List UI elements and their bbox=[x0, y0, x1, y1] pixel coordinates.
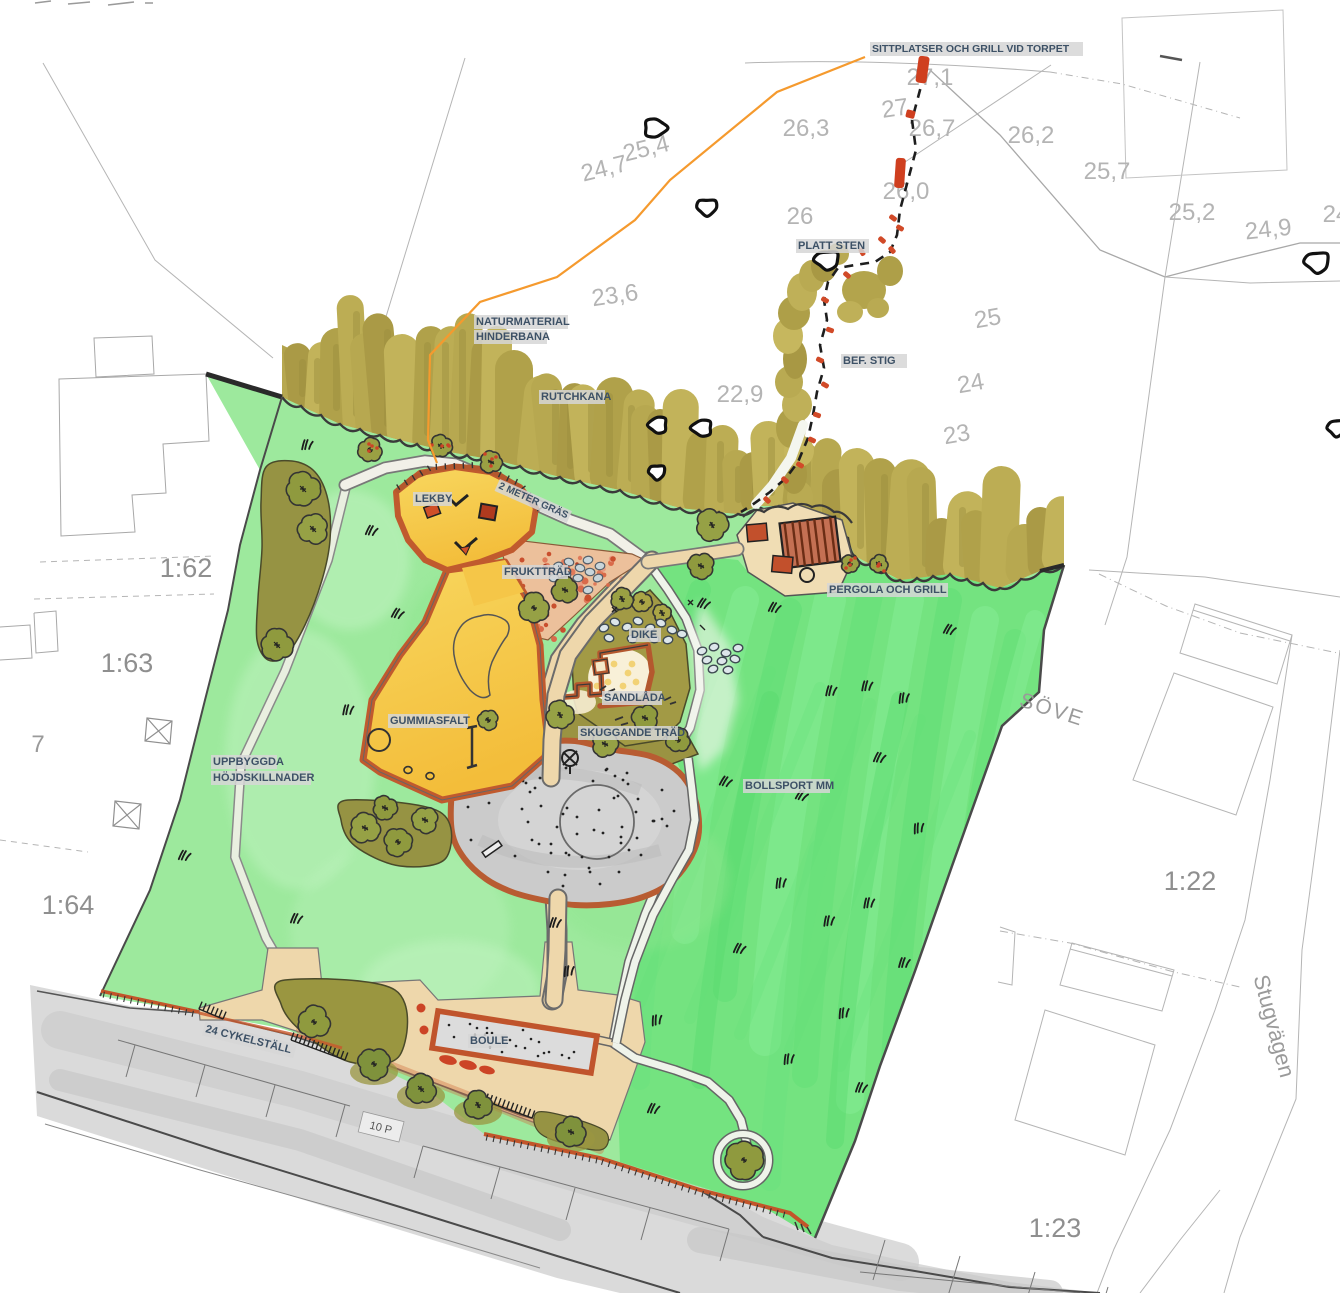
svg-text:1:62: 1:62 bbox=[160, 553, 213, 583]
svg-text:1:64: 1:64 bbox=[42, 890, 95, 920]
svg-text:26: 26 bbox=[787, 203, 814, 230]
svg-text:NATURMATERIAL: NATURMATERIAL bbox=[476, 316, 570, 328]
svg-text:BEF. STIG: BEF. STIG bbox=[843, 355, 896, 367]
svg-text:HINDERBANA: HINDERBANA bbox=[476, 331, 550, 343]
svg-text:1:63: 1:63 bbox=[101, 648, 154, 678]
svg-text:1:22: 1:22 bbox=[1164, 866, 1217, 896]
svg-text:25,7: 25,7 bbox=[1084, 158, 1131, 185]
svg-text:BOLLSPORT MM: BOLLSPORT MM bbox=[745, 780, 834, 792]
svg-text:7: 7 bbox=[31, 731, 44, 758]
svg-text:23: 23 bbox=[941, 419, 972, 450]
svg-text:LEKBY: LEKBY bbox=[415, 493, 453, 505]
svg-text:UPPBYGGDA: UPPBYGGDA bbox=[213, 756, 284, 768]
svg-text:1:23: 1:23 bbox=[1029, 1213, 1082, 1243]
svg-text:27,1: 27,1 bbox=[907, 64, 954, 91]
svg-text:22,9: 22,9 bbox=[717, 381, 764, 408]
svg-text:24: 24 bbox=[1323, 201, 1340, 228]
svg-text:SITTPLATSER OCH GRILL VID TORP: SITTPLATSER OCH GRILL VID TORPET bbox=[872, 43, 1070, 55]
svg-text:BOULE: BOULE bbox=[470, 1035, 509, 1047]
svg-text:24: 24 bbox=[955, 368, 986, 399]
svg-text:PERGOLA OCH GRILL: PERGOLA OCH GRILL bbox=[829, 584, 947, 596]
svg-text:25,2: 25,2 bbox=[1169, 199, 1216, 226]
svg-text:SANDLÅDA: SANDLÅDA bbox=[604, 691, 666, 704]
svg-text:DIKE: DIKE bbox=[631, 629, 657, 641]
svg-text:FRUKTTRÄD: FRUKTTRÄD bbox=[504, 565, 572, 578]
svg-text:26,3: 26,3 bbox=[783, 115, 830, 142]
svg-text:27: 27 bbox=[880, 93, 910, 123]
svg-text:26,2: 26,2 bbox=[1008, 122, 1055, 149]
svg-text:HÖJDSKILLNADER: HÖJDSKILLNADER bbox=[213, 771, 315, 784]
svg-text:25: 25 bbox=[972, 303, 1003, 334]
svg-text:24,9: 24,9 bbox=[1244, 214, 1293, 246]
svg-text:PLATT STEN: PLATT STEN bbox=[798, 240, 865, 252]
svg-text:SKUGGANDE TRÄD: SKUGGANDE TRÄD bbox=[580, 726, 685, 739]
svg-text:GUMMIASFALT: GUMMIASFALT bbox=[390, 715, 470, 727]
svg-text:RUTCHKANA: RUTCHKANA bbox=[541, 391, 611, 403]
